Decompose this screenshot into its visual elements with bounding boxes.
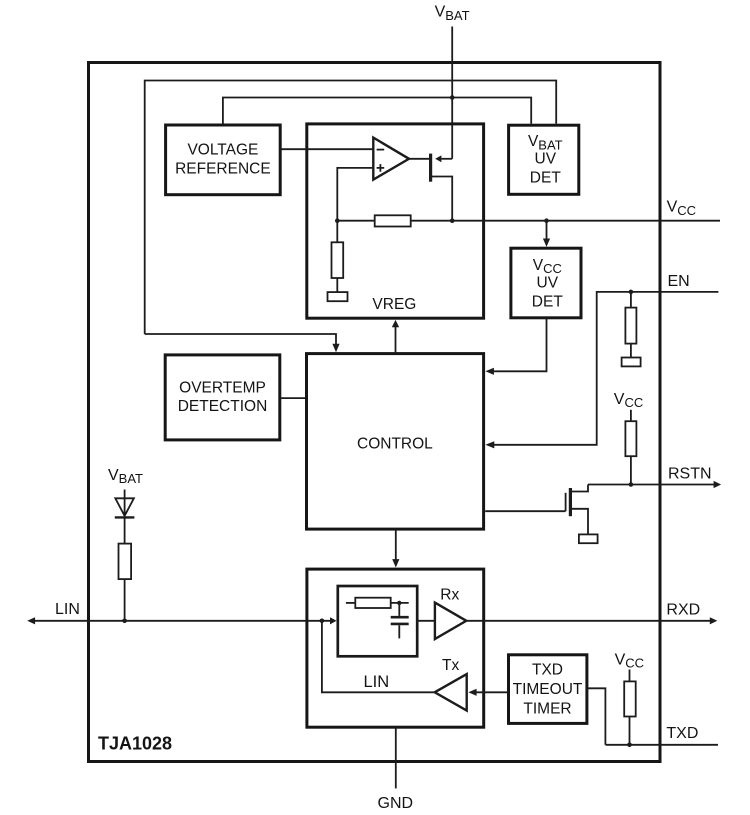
svg-text:OVERTEMP: OVERTEMP	[179, 380, 266, 397]
svg-text:TXD: TXD	[666, 725, 698, 742]
svg-text:DET: DET	[532, 293, 564, 310]
svg-text:TJA1028: TJA1028	[98, 733, 172, 753]
svg-text:Tx: Tx	[442, 657, 459, 674]
svg-text:TIMER: TIMER	[523, 701, 571, 718]
svg-text:LIN: LIN	[364, 673, 390, 691]
svg-text:VOLTAGE: VOLTAGE	[187, 142, 258, 159]
svg-text:EN: EN	[668, 273, 690, 290]
svg-text:UV: UV	[535, 150, 557, 167]
svg-text:RXD: RXD	[666, 601, 700, 618]
svg-text:Rx: Rx	[440, 586, 459, 603]
svg-text:REFERENCE: REFERENCE	[175, 161, 271, 178]
svg-text:RSTN: RSTN	[668, 465, 712, 482]
svg-text:CONTROL: CONTROL	[357, 436, 433, 453]
svg-text:VREG: VREG	[372, 296, 416, 313]
svg-text:UV: UV	[537, 274, 559, 291]
svg-text:LIN: LIN	[55, 601, 80, 618]
svg-text:DETECTION: DETECTION	[178, 398, 268, 415]
svg-text:GND: GND	[378, 795, 414, 812]
svg-text:DET: DET	[530, 170, 562, 187]
svg-text:TXD: TXD	[532, 662, 563, 679]
svg-text:TIMEOUT: TIMEOUT	[513, 681, 583, 698]
